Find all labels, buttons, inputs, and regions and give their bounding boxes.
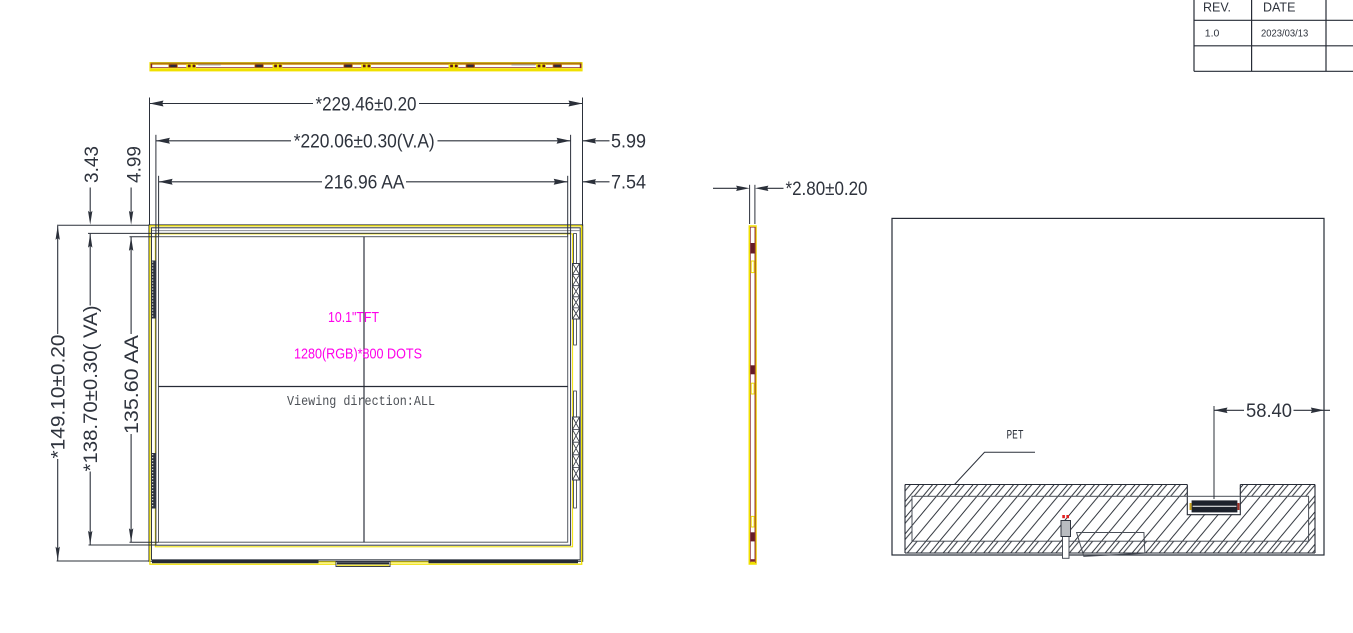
svg-text:10.1"TFT: 10.1"TFT [328, 309, 379, 326]
svg-text:*138.70±0.30( VA): *138.70±0.30( VA) [81, 306, 102, 472]
svg-text:3.43: 3.43 [82, 146, 103, 183]
svg-text:*149.10±0.20: *149.10±0.20 [48, 335, 69, 459]
svg-text:REV.: REV. [1203, 1, 1231, 15]
svg-text:DATE: DATE [1263, 1, 1295, 15]
svg-text:216.96 AA: 216.96 AA [324, 173, 405, 194]
svg-text:1280(RGB)*800 DOTS: 1280(RGB)*800 DOTS [294, 346, 422, 363]
svg-text:PET: PET [1007, 429, 1024, 443]
svg-text:135.60 AA: 135.60 AA [122, 335, 143, 434]
svg-text:*2.80±0.20: *2.80±0.20 [786, 179, 868, 200]
svg-text:5.99: 5.99 [611, 132, 646, 153]
svg-text:1.0: 1.0 [1205, 28, 1220, 40]
svg-text:Viewing direction:ALL: Viewing direction:ALL [287, 395, 435, 410]
svg-text:7.54: 7.54 [611, 173, 646, 194]
svg-text:*229.46±0.20: *229.46±0.20 [316, 94, 417, 115]
svg-text:*220.06±0.30(V.A): *220.06±0.30(V.A) [294, 132, 435, 153]
svg-text:58.40: 58.40 [1246, 401, 1292, 422]
svg-text:2023/03/13: 2023/03/13 [1261, 29, 1309, 40]
svg-text:4.99: 4.99 [125, 146, 146, 183]
